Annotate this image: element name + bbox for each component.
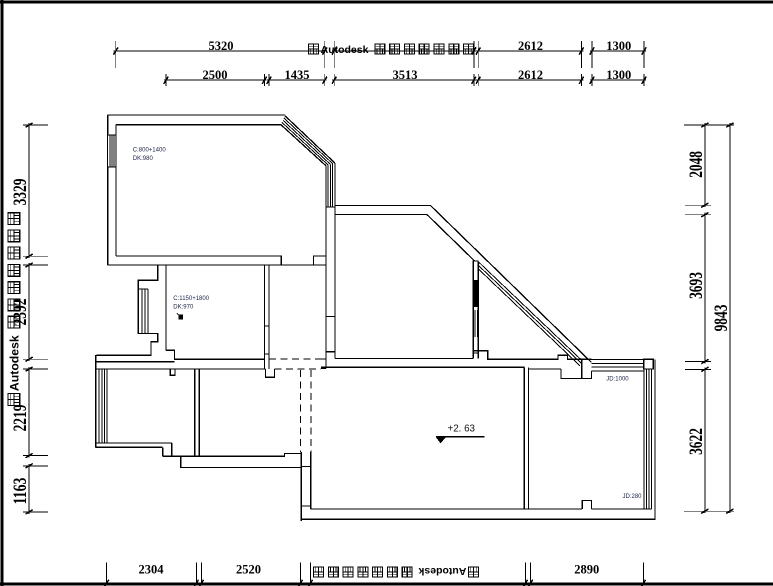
svg-text:JD:280: JD:280 xyxy=(623,494,643,500)
svg-text:2219: 2219 xyxy=(10,405,31,432)
svg-text:1300: 1300 xyxy=(606,68,631,82)
svg-text:2890: 2890 xyxy=(574,563,599,577)
svg-text:1435: 1435 xyxy=(285,68,310,82)
svg-text:2612: 2612 xyxy=(518,39,543,53)
svg-text:DK:980: DK:980 xyxy=(133,156,154,162)
svg-text:1300: 1300 xyxy=(606,39,631,53)
svg-text:2500: 2500 xyxy=(203,68,228,82)
svg-text:Autodesk: Autodesk xyxy=(7,335,21,391)
svg-text:3329: 3329 xyxy=(10,179,31,206)
svg-text:9843: 9843 xyxy=(711,305,732,332)
svg-text:2520: 2520 xyxy=(236,563,261,577)
svg-text:2304: 2304 xyxy=(139,563,165,577)
svg-text:3513: 3513 xyxy=(393,68,418,82)
svg-text:C:1150+1800: C:1150+1800 xyxy=(173,296,209,302)
svg-text:C:800+1400: C:800+1400 xyxy=(133,147,167,153)
svg-text:+2. 63: +2. 63 xyxy=(448,424,476,435)
svg-text:Autodesk: Autodesk xyxy=(418,565,466,577)
svg-text:DK:970: DK:970 xyxy=(173,305,194,311)
svg-text:2612: 2612 xyxy=(518,68,543,82)
svg-text:JD:1000: JD:1000 xyxy=(606,377,629,383)
svg-text:3622: 3622 xyxy=(686,428,707,455)
svg-text:1163: 1163 xyxy=(10,478,31,505)
svg-text:2392: 2392 xyxy=(10,299,31,326)
svg-text:5320: 5320 xyxy=(209,39,234,53)
svg-text:Autodesk: Autodesk xyxy=(321,44,369,56)
svg-text:3693: 3693 xyxy=(686,272,707,299)
svg-text:2048: 2048 xyxy=(686,151,707,178)
